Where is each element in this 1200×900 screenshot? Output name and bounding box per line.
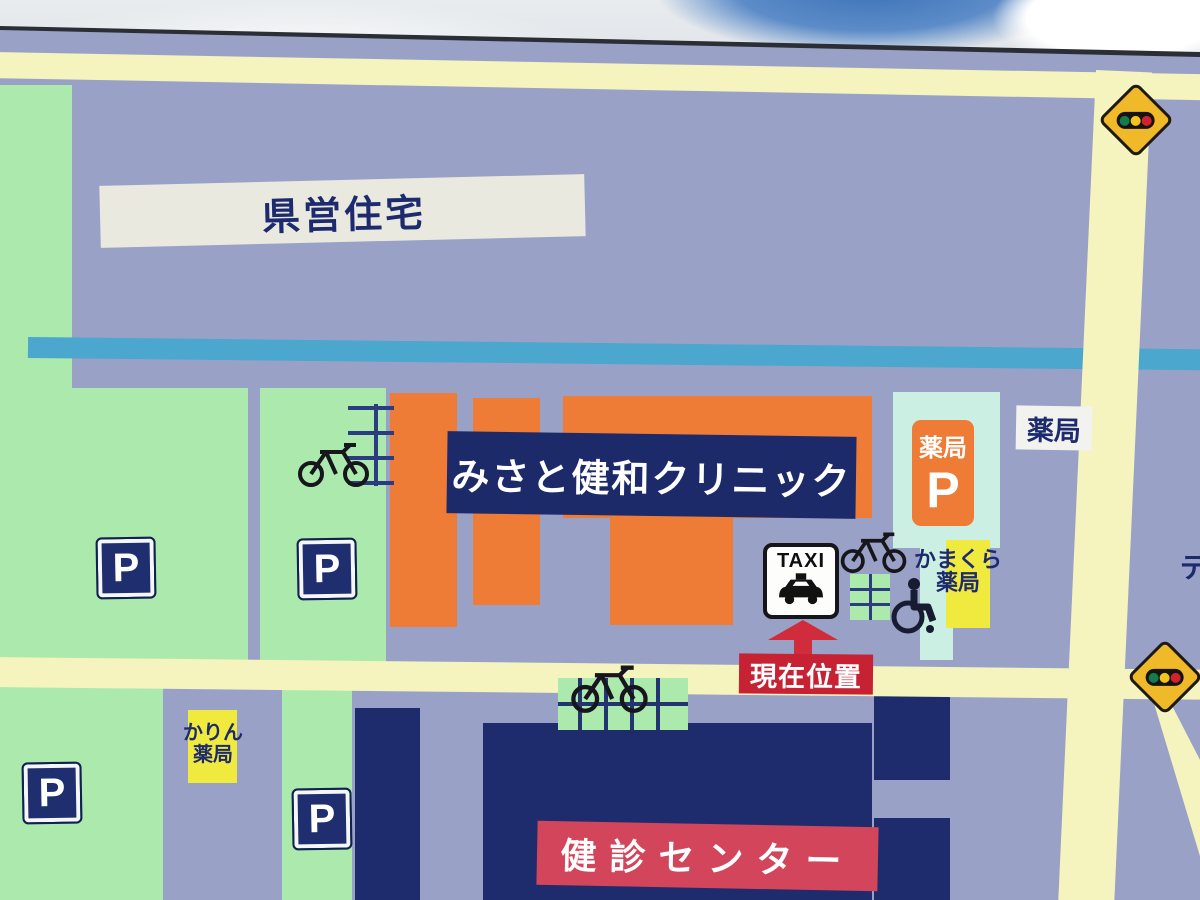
pharmacy-label-text: 薬局 (1027, 408, 1082, 448)
road-fork-southeast (1150, 690, 1200, 865)
road-east-northsouth (1058, 70, 1152, 900)
taxi-label: TAXI (777, 550, 825, 573)
taxi-stand-sign: TAXI (763, 543, 839, 619)
pharmacy-parking-p: P (926, 463, 959, 518)
bicycle-icon (298, 436, 370, 488)
checkup-center-label: 健診センター (560, 827, 855, 885)
p-letter: P (38, 770, 65, 815)
bicycle-icon (840, 526, 908, 574)
clinic-building-south-wing (610, 518, 733, 625)
bicycle-icon (570, 658, 650, 714)
pharmacy-parking-sign: 薬局 P (912, 420, 974, 526)
taxi-car-icon (778, 573, 824, 605)
green-light (1120, 115, 1130, 125)
yellow-light (1160, 672, 1170, 682)
parking-p-sign-icon: P (95, 536, 156, 599)
pharmacy-parking-label: 薬局 (919, 428, 967, 463)
parking-p-sign-icon: P (21, 761, 82, 824)
current-location-marker: 現在位置 (739, 653, 873, 694)
current-location-label: 現在位置 (750, 654, 862, 694)
karin-line1: かりん (176, 722, 250, 744)
green-light (1149, 672, 1159, 682)
yellow-light (1131, 115, 1141, 125)
up-arrow-icon (768, 620, 838, 656)
checkup-center-annex-lower (874, 818, 950, 900)
p-letter: P (313, 546, 340, 591)
red-light (1142, 115, 1152, 125)
checkup-center-banner: 健診センター (536, 821, 878, 892)
road-north (0, 52, 1200, 101)
map-signboard: 県営住宅 (0, 0, 1200, 900)
parking-p-sign-icon: P (296, 537, 357, 600)
building-column-south (355, 708, 420, 900)
waterway-stripe (28, 337, 1200, 370)
kamakura-pharmacy-label: かまくら 薬局 (903, 548, 1013, 594)
red-light (1171, 672, 1181, 682)
photo-of-guide-map: 県営住宅 (0, 0, 1200, 900)
p-letter: P (112, 545, 139, 590)
checkup-center-annex-upper (874, 695, 950, 780)
parking-p-sign-icon: P (291, 787, 352, 850)
traffic-signal-sign-icon (1127, 639, 1200, 715)
prefectural-housing-block: 県営住宅 (99, 174, 585, 248)
kamakura-line2: 薬局 (903, 571, 1013, 594)
traffic-light (1117, 112, 1155, 129)
traffic-light (1146, 669, 1184, 686)
p-letter: P (308, 796, 335, 841)
clinic-name-banner: みさと健和クリニック (446, 431, 856, 519)
clinic-name-label: みさと健和クリニック (451, 445, 852, 506)
kamakura-line1: かまくら (903, 548, 1013, 571)
prefectural-housing-label: 県営住宅 (261, 181, 426, 240)
right-edge-partial-label: デ (1180, 546, 1200, 582)
karin-line2: 薬局 (176, 744, 250, 766)
pharmacy-label: 薬局 (1016, 405, 1093, 450)
arrow-head (768, 620, 838, 640)
karin-pharmacy-label: かりん 薬局 (176, 722, 250, 766)
